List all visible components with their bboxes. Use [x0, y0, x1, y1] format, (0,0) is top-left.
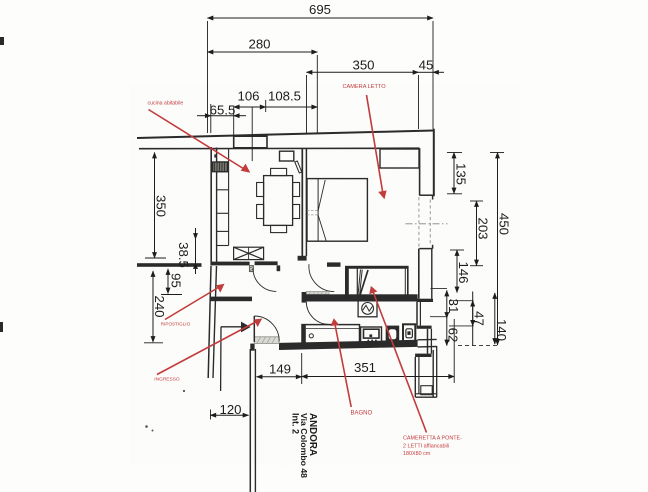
svg-text:38.5: 38.5 [176, 242, 191, 268]
svg-text:CAMERA LETTO: CAMERA LETTO [343, 84, 387, 90]
svg-text:135: 135 [454, 163, 469, 185]
svg-text:RIPOSTIGLIO: RIPOSTIGLIO [161, 322, 191, 327]
svg-text:350: 350 [154, 195, 169, 217]
svg-text:95: 95 [169, 273, 184, 288]
svg-text:108.5: 108.5 [268, 89, 301, 104]
svg-text:106: 106 [237, 89, 259, 104]
svg-text:350: 350 [352, 58, 374, 73]
svg-text:146: 146 [456, 261, 471, 283]
svg-text:cucina abitabile: cucina abitabile [148, 101, 184, 107]
svg-text:Int. 2: Int. 2 [291, 413, 301, 434]
svg-text:280: 280 [248, 37, 270, 52]
svg-text:CAMERETTA A PONTE-: CAMERETTA A PONTE- [403, 436, 462, 442]
svg-text:31: 31 [446, 299, 461, 314]
svg-text:BAGNO: BAGNO [351, 411, 373, 417]
svg-text:2 LETTI affiancabili: 2 LETTI affiancabili [403, 444, 449, 450]
svg-text:240: 240 [152, 295, 167, 317]
svg-text:450: 450 [497, 213, 512, 235]
svg-text:65.5: 65.5 [210, 102, 236, 117]
svg-text:INGRESSO: INGRESSO [154, 377, 180, 383]
svg-text:47: 47 [472, 311, 487, 326]
svg-text:180X80 cm: 180X80 cm [403, 451, 431, 457]
svg-text:351: 351 [354, 360, 376, 375]
svg-text:120: 120 [219, 402, 241, 417]
svg-text:695: 695 [309, 2, 331, 17]
svg-text:45: 45 [419, 58, 434, 73]
svg-text:62: 62 [445, 328, 460, 343]
svg-text:149: 149 [269, 362, 291, 377]
svg-text:140: 140 [494, 319, 509, 341]
svg-text:203: 203 [476, 217, 491, 239]
